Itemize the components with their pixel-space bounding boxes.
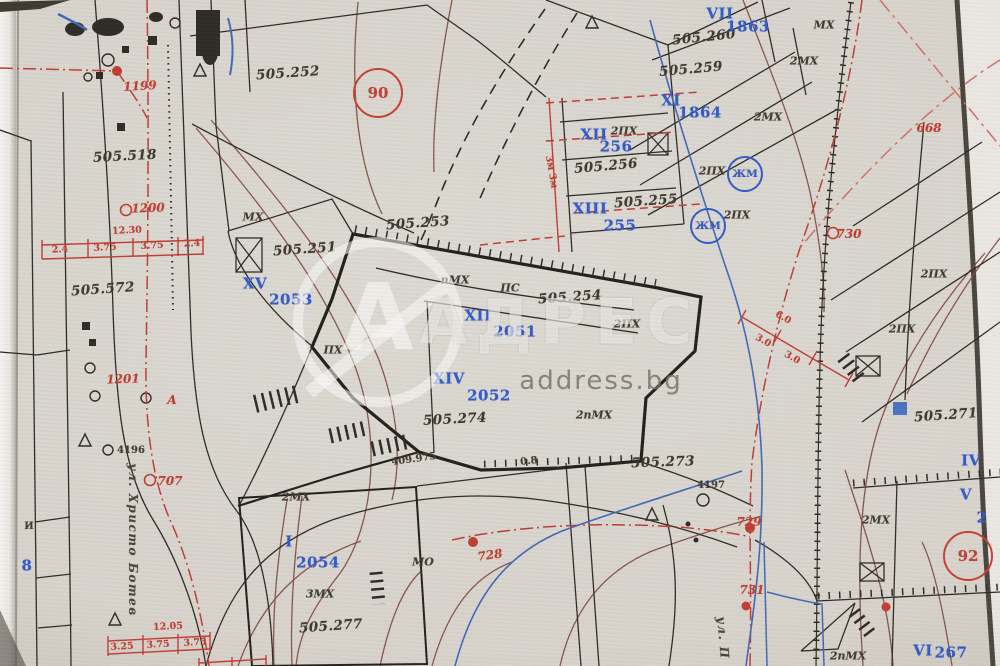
dimension-label: 12.05 bbox=[153, 621, 183, 632]
parcel-id: IV bbox=[961, 454, 981, 469]
circled-mark: 92 bbox=[943, 531, 993, 581]
regulation-number: 729 bbox=[736, 516, 761, 528]
building-type-label: МХ bbox=[814, 20, 835, 31]
parcel-id: 2051 bbox=[493, 325, 537, 340]
survey-number: 505.254 bbox=[538, 289, 603, 307]
survey-number: 505.255 bbox=[614, 193, 679, 211]
parcel-id: 1863 bbox=[726, 20, 770, 35]
parcel-id: I bbox=[285, 535, 293, 550]
parcel-id: 2 bbox=[977, 511, 988, 526]
building-type-label: 3МХ bbox=[306, 589, 334, 600]
parcel-id: VI bbox=[913, 644, 933, 659]
building-type-label: пМХ bbox=[441, 275, 470, 286]
dimension-label: 2.4 bbox=[183, 239, 200, 249]
survey-number: 505.252 bbox=[256, 65, 321, 83]
circled-mark: ЖМ bbox=[690, 208, 726, 244]
survey-number: 505.256 bbox=[574, 157, 639, 176]
parcel-id: V bbox=[960, 488, 972, 503]
regulation-number: А bbox=[167, 394, 177, 406]
street-name: ул. П bbox=[715, 616, 731, 660]
building-type-label: 2МХ bbox=[754, 112, 782, 123]
parcel-id: XIV bbox=[433, 372, 465, 387]
building-type-label: 2ПХ bbox=[724, 210, 751, 221]
survey-number: 505.271 bbox=[914, 407, 979, 425]
parcel-id: 267 bbox=[935, 646, 968, 661]
building-type-label: 2пМХ bbox=[576, 410, 612, 421]
building-type-label: 2ПХ bbox=[699, 166, 726, 177]
building-type-label: 2ПХ bbox=[614, 319, 641, 330]
building-type-label: 2ПХ bbox=[611, 126, 638, 137]
building-type-label: 2МХ bbox=[862, 515, 890, 526]
dimension-label: 3м 3м bbox=[543, 155, 558, 189]
building-type-label: МО bbox=[412, 557, 434, 568]
regulation-number: 668 bbox=[916, 122, 941, 134]
building-type-label: 2МХ bbox=[790, 56, 818, 67]
map-labels: 505.252505.518505.572505.260505.259505.2… bbox=[0, 0, 1000, 666]
building-type-label: 2МХ bbox=[282, 492, 310, 503]
parcel-id: 256 bbox=[600, 140, 633, 155]
regulation-number: 728 bbox=[477, 547, 503, 562]
parcel-id: XV bbox=[243, 277, 267, 292]
survey-number: 505.253 bbox=[386, 215, 451, 233]
note-label: 0.8 bbox=[520, 456, 538, 468]
regulation-number: 1201 bbox=[106, 372, 140, 385]
regulation-number: 1199 bbox=[123, 79, 157, 93]
street-name: ул. Христо Ботев bbox=[127, 463, 139, 616]
dimension-label: 3.0 bbox=[782, 350, 801, 366]
survey-number: 505.518 bbox=[93, 149, 157, 166]
regulation-number: 730 bbox=[836, 228, 861, 240]
parcel-id: 255 bbox=[604, 219, 637, 234]
survey-number: 505.251 bbox=[273, 241, 338, 259]
note-label: И bbox=[24, 522, 33, 532]
parcel-id: 2053 bbox=[269, 293, 313, 308]
dimension-label: 3.75 bbox=[183, 638, 207, 649]
parcel-id: 2052 bbox=[467, 389, 511, 404]
circled-mark: 90 bbox=[353, 68, 403, 118]
survey-number: 505.273 bbox=[631, 455, 695, 471]
parcel-id: XIII bbox=[573, 202, 608, 217]
survey-number: 505.259 bbox=[659, 60, 724, 79]
regulation-number: 731 bbox=[739, 584, 764, 596]
building-type-label: ПС bbox=[500, 283, 519, 294]
survey-number: 505.572 bbox=[71, 281, 136, 299]
dimension-label: 2.4 bbox=[51, 245, 68, 255]
note-label: 4196 bbox=[117, 446, 145, 456]
building-type-label: 2ПХ bbox=[889, 324, 916, 335]
building-type-label: 2ПХ bbox=[921, 269, 948, 280]
dimension-label: 3.75 bbox=[140, 241, 164, 252]
note-label: 409.975 bbox=[391, 452, 437, 468]
survey-number: 505.277 bbox=[299, 618, 364, 636]
dimension-label: 3.25 bbox=[110, 642, 134, 653]
parcel-id: 8 bbox=[22, 559, 33, 574]
circled-mark: ЖМ bbox=[727, 156, 763, 192]
building-type-label: ПХ bbox=[324, 345, 343, 356]
cadastral-map-scan: 505.252505.518505.572505.260505.259505.2… bbox=[0, 0, 1000, 666]
parcel-id: 1864 bbox=[678, 106, 722, 121]
dimension-label: 3.75 bbox=[146, 640, 170, 651]
regulation-number: 707 bbox=[157, 475, 182, 487]
regulation-number: 1200 bbox=[131, 201, 165, 214]
dimension-label: 6.0 bbox=[773, 310, 792, 326]
note-label: 4197 bbox=[697, 481, 725, 491]
dimension-label: 12.30 bbox=[112, 225, 142, 236]
parcel-id: 2054 bbox=[296, 556, 340, 571]
building-type-label: 2пМХ bbox=[830, 651, 866, 662]
survey-number: 505.274 bbox=[423, 412, 487, 429]
dimension-label: 3.75 bbox=[93, 243, 117, 254]
dimension-label: 3.0 bbox=[753, 333, 772, 349]
building-type-label: МХ bbox=[243, 212, 264, 223]
parcel-id: XII bbox=[464, 309, 491, 324]
